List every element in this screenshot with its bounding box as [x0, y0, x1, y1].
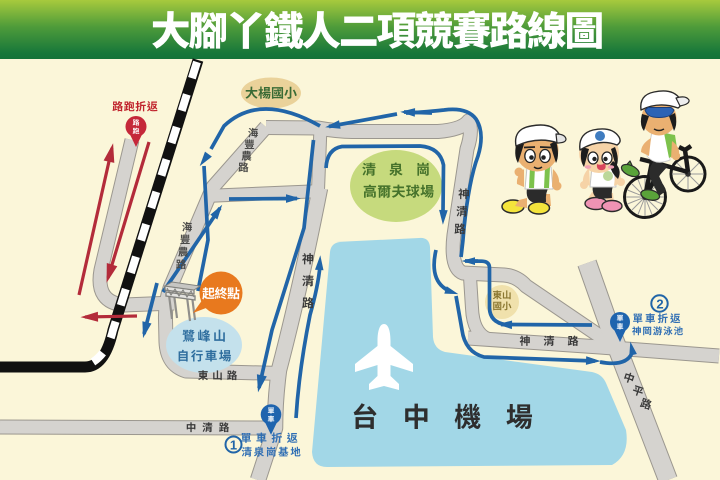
svg-text:1: 1	[230, 438, 237, 453]
svg-text:2: 2	[656, 297, 663, 312]
